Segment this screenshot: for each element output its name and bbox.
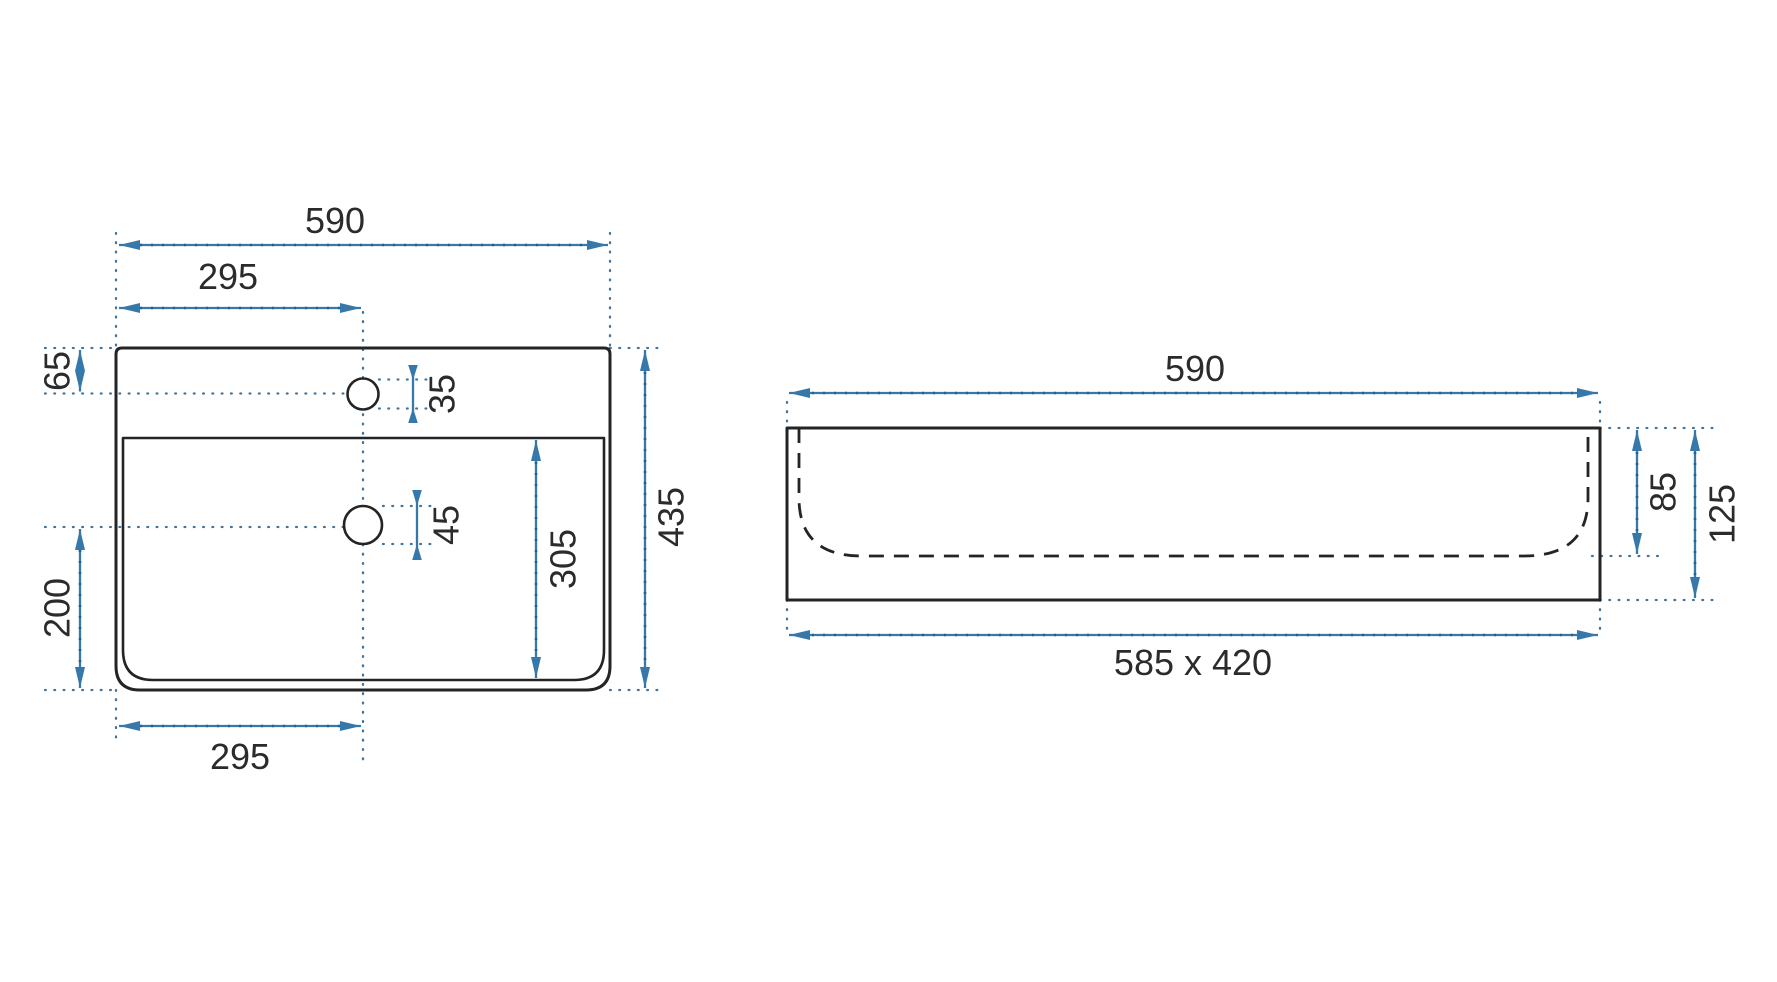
dim-label-front-basin-depth: 85 <box>1643 472 1684 512</box>
dim-bottom-half-width: 295 <box>119 726 361 777</box>
front-view: 590 85 125 585 x 420 <box>787 348 1743 683</box>
dim-drain-front-offset: 200 <box>37 529 81 688</box>
dim-label-front-total-width: 590 <box>1165 348 1225 389</box>
front-view-hidden-basin-outline <box>799 428 1588 556</box>
dim-front-total-height: 125 <box>1695 430 1743 598</box>
dim-front-basin-depth: 85 <box>1637 430 1684 554</box>
dim-drain-hole-diameter: 45 <box>412 490 466 560</box>
dim-top-total-width: 590 <box>119 200 608 245</box>
technical-drawing-canvas: 590 295 65 200 <box>0 0 1777 982</box>
dim-inner-basin-length: 305 <box>536 440 584 678</box>
dim-label-inner-basin-length: 305 <box>543 529 584 589</box>
top-view: 590 295 65 200 <box>37 200 692 777</box>
dim-label-bottom-half-width: 295 <box>210 736 270 777</box>
dim-label-top-total-depth: 435 <box>651 487 692 547</box>
top-view-inner-basin-outline <box>123 438 604 680</box>
dim-label-drain-hole-diameter: 45 <box>426 505 467 545</box>
dim-label-faucet-hole-diameter: 35 <box>422 374 463 414</box>
drain-hole <box>344 506 382 544</box>
dim-front-total-width: 590 <box>789 348 1598 393</box>
front-view-body-outline <box>787 428 1600 600</box>
dim-faucet-hole-diameter: 35 <box>408 365 462 423</box>
dim-front-footprint: 585 x 420 <box>789 635 1598 683</box>
dim-top-half-width: 295 <box>119 256 361 308</box>
dim-label-top-total-width: 590 <box>305 200 365 241</box>
top-view-extension-lines <box>45 233 660 765</box>
dim-label-front-total-height: 125 <box>1702 484 1743 544</box>
dim-label-front-footprint: 585 x 420 <box>1114 642 1272 683</box>
dim-label-drain-front-offset: 200 <box>37 578 78 638</box>
dim-label-faucet-edge-offset: 65 <box>37 351 78 391</box>
front-view-extension-lines <box>787 402 1718 630</box>
faucet-hole <box>348 379 379 410</box>
dim-label-top-half-width: 295 <box>198 256 258 297</box>
dim-faucet-edge-offset: 65 <box>37 350 81 392</box>
dim-top-total-depth: 435 <box>645 350 692 688</box>
washbasin-dimension-drawing: 590 295 65 200 <box>0 0 1777 982</box>
